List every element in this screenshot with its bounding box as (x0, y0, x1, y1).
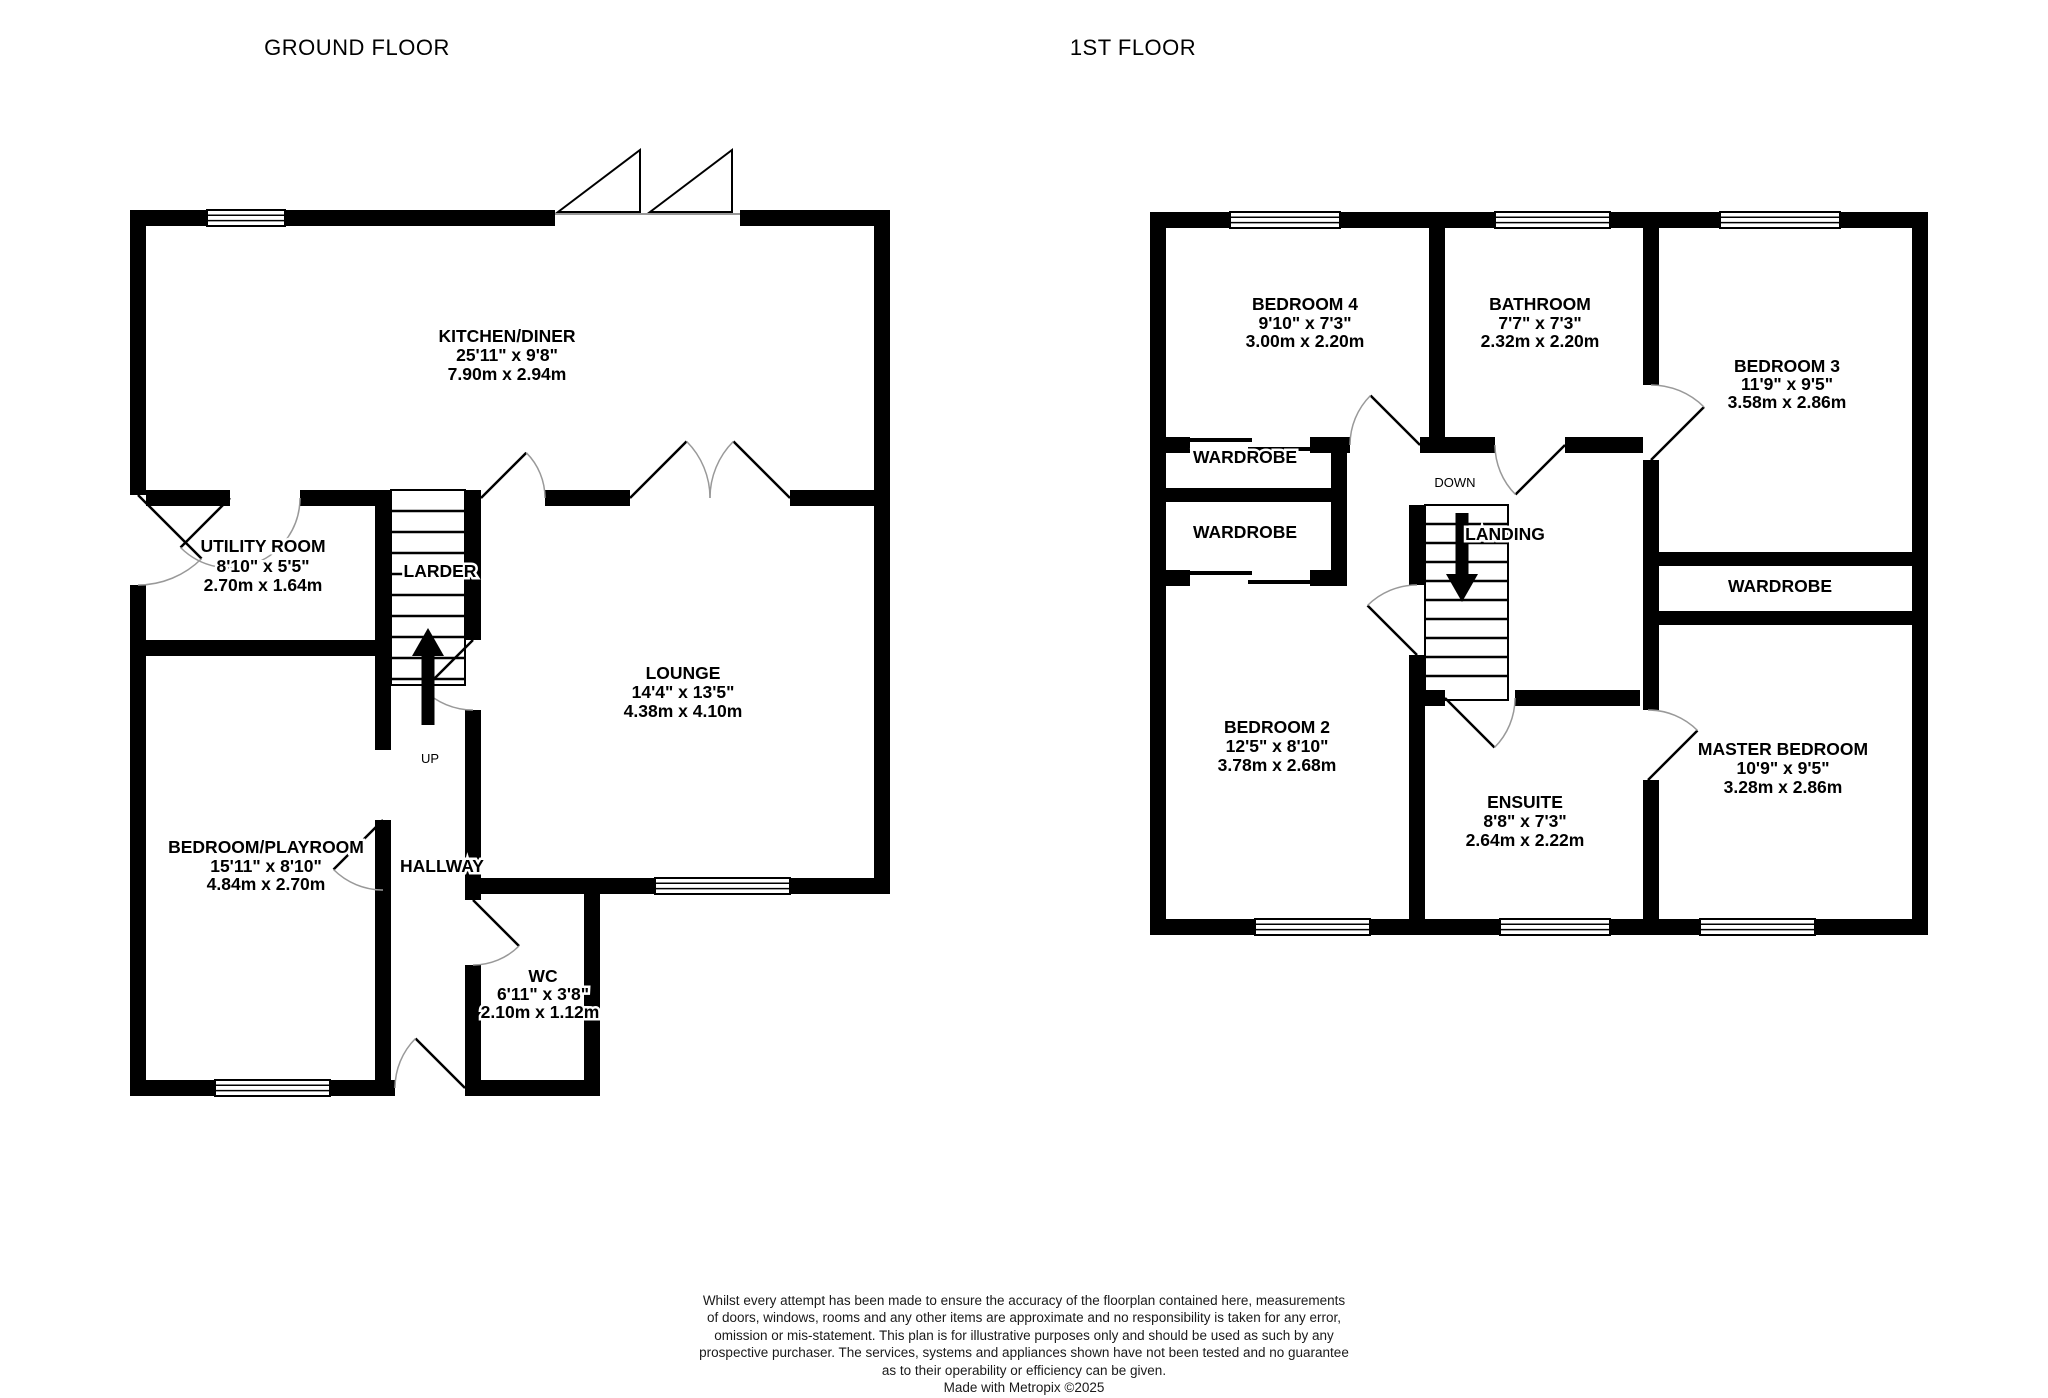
room-size-metric: 7.90m x 2.94m (448, 364, 567, 384)
room-size-imperial: 11'9" x 9'5" (1741, 374, 1833, 394)
room-name: BEDROOM 3 (1734, 356, 1840, 376)
ff-label-master: MASTER BEDROOM 10'9" x 9'5" 3.28m x 2.86… (1698, 739, 1868, 797)
ff-label-ensuite: ENSUITE 8'8" x 7'3" 2.64m x 2.22m (1466, 792, 1585, 850)
room-size-imperial: 14'4" x 13'5" (632, 682, 735, 702)
room-size-metric: 2.32m x 2.20m (1481, 331, 1600, 351)
gf-folding-doors (555, 150, 740, 214)
gf-front-door (395, 1039, 465, 1089)
room-name: UTILITY ROOM (200, 536, 325, 556)
room-size-imperial: 10'9" x 9'5" (1736, 758, 1829, 778)
room-size-metric: 4.38m x 4.10m (624, 701, 743, 721)
ff-label-wardrobe3: WARDROBE (1728, 576, 1832, 596)
ff-door-bedroom3 (1651, 385, 1704, 460)
ff-label-wardrobe1: WARDROBE (1193, 447, 1297, 467)
room-size-imperial: 8'8" x 7'3" (1483, 811, 1566, 831)
ff-window-bathroom (1495, 212, 1610, 228)
ff-window-bedroom3 (1720, 212, 1840, 228)
room-name: KITCHEN/DINER (438, 326, 575, 346)
ff-window-master (1700, 919, 1815, 935)
room-name: BATHROOM (1489, 294, 1591, 314)
room-size-imperial: 15'11" x 8'10" (210, 856, 322, 876)
room-size-imperial: 6'11" x 3'8" (497, 984, 589, 1004)
room-name: WC (528, 966, 558, 986)
room-name: BEDROOM 2 (1224, 717, 1330, 737)
ff-label-bedroom2: BEDROOM 2 12'5" x 8'10" 3.78m x 2.68m (1218, 717, 1337, 775)
room-name: LOUNGE (646, 663, 721, 683)
gf-label-hallway: HALLWAY (400, 856, 484, 876)
room-name: ENSUITE (1487, 792, 1563, 812)
ff-label-down: DOWN (1434, 475, 1475, 490)
room-size-imperial: 8'10" x 5'5" (216, 556, 309, 576)
first-floor-title: 1ST FLOOR (1070, 35, 1196, 60)
room-size-metric: 4.84m x 2.70m (207, 874, 326, 894)
floorplan-drawing: GROUND FLOOR 1ST FLOOR (0, 0, 2048, 1398)
ff-door-master (1648, 710, 1698, 780)
ff-door-bedroom2 (1368, 585, 1418, 655)
ff-window-ensuite (1500, 919, 1610, 935)
ff-label-bathroom: BATHROOM 7'7" x 7'3" 2.32m x 2.20m (1481, 294, 1600, 351)
gf-door-kitchen-hallway (481, 453, 545, 498)
ff-label-landing: LANDING (1465, 524, 1545, 544)
ff-door-bedroom4 (1350, 396, 1420, 446)
ff-door-ensuite (1445, 698, 1515, 748)
disclaimer-text: Whilst every attempt has been made to en… (0, 1292, 2048, 1396)
ff-window-bedroom2 (1255, 919, 1370, 935)
gf-window-lounge (655, 878, 790, 894)
gf-door-utility-external (138, 495, 202, 585)
room-size-metric: 3.28m x 2.86m (1724, 777, 1843, 797)
room-size-metric: 3.78m x 2.68m (1218, 755, 1337, 775)
room-name: MASTER BEDROOM (1698, 739, 1868, 759)
room-name: BEDROOM 4 (1252, 294, 1358, 314)
gf-label-wc: WC 6'11" x 3'8" 2.10m x 1.12m (481, 966, 600, 1022)
ff-window-bedroom4 (1230, 212, 1340, 228)
room-size-imperial: 9'10" x 7'3" (1258, 313, 1351, 333)
gf-label-utility: UTILITY ROOM 8'10" x 5'5" 2.70m x 1.64m (200, 536, 325, 595)
gf-french-doors-kitchen-lounge (630, 441, 790, 498)
room-size-imperial: 25'11" x 9'8" (456, 345, 558, 365)
room-name: BEDROOM/PLAYROOM (168, 837, 364, 857)
gf-label-kitchen: KITCHEN/DINER 25'11" x 9'8" 7.90m x 2.94… (438, 326, 575, 384)
room-size-metric: 2.10m x 1.12m (481, 1002, 600, 1022)
room-size-metric: 3.58m x 2.86m (1728, 392, 1847, 412)
room-size-metric: 2.64m x 2.22m (1466, 830, 1585, 850)
gf-door-wc (473, 900, 519, 965)
ff-label-wardrobe2: WARDROBE (1193, 522, 1297, 542)
gf-label-lounge: LOUNGE 14'4" x 13'5" 4.38m x 4.10m (624, 663, 743, 721)
room-size-metric: 2.70m x 1.64m (204, 575, 323, 595)
ff-label-bedroom3: BEDROOM 3 11'9" x 9'5" 3.58m x 2.86m (1728, 356, 1847, 412)
gf-label-up: UP (421, 751, 439, 766)
ff-label-bedroom4: BEDROOM 4 9'10" x 7'3" 3.00m x 2.20m (1246, 294, 1365, 351)
gf-label-playroom: BEDROOM/PLAYROOM 15'11" x 8'10" 4.84m x … (168, 837, 364, 894)
room-size-metric: 3.00m x 2.20m (1246, 331, 1365, 351)
gf-window-playroom (215, 1080, 330, 1096)
gf-window-kitchen (207, 210, 285, 226)
ground-floor-title: GROUND FLOOR (264, 35, 450, 60)
room-size-imperial: 7'7" x 7'3" (1498, 313, 1581, 333)
floorplan-page: GROUND FLOOR 1ST FLOOR (0, 0, 2048, 1398)
up-arrow-icon (412, 628, 444, 725)
room-size-imperial: 12'5" x 8'10" (1226, 736, 1329, 756)
ff-wardrobe2-sliding-doors (1190, 571, 1310, 584)
gf-label-larder: LARDER (404, 561, 477, 581)
gf-stairs-up (391, 490, 465, 725)
ff-door-bathroom (1495, 445, 1565, 495)
